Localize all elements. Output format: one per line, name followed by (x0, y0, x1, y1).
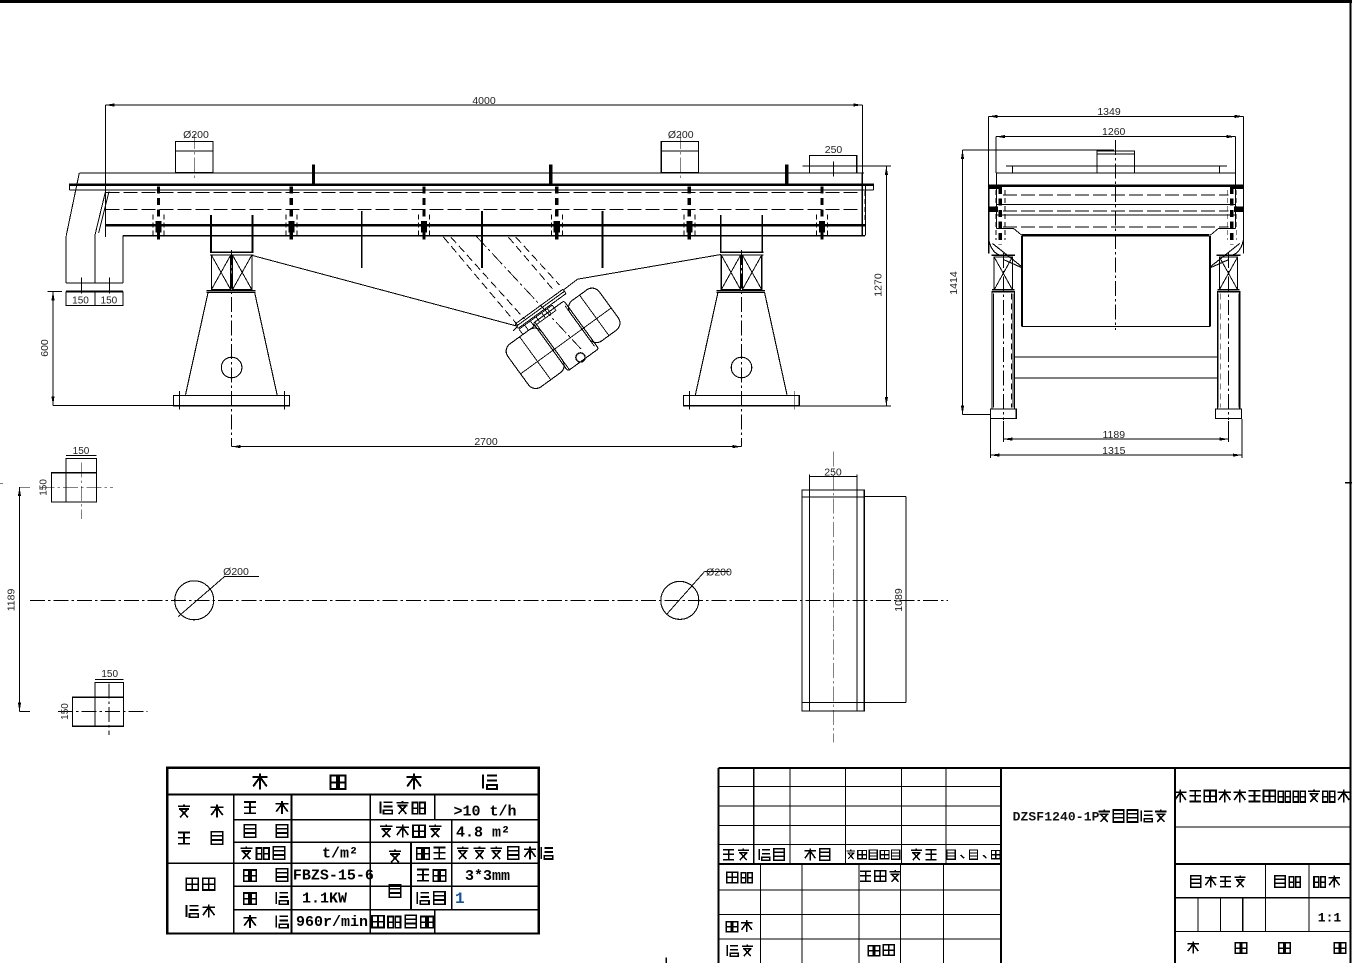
svg-text:3*3mm: 3*3mm (465, 868, 510, 885)
svg-text:150: 150 (60, 703, 71, 720)
svg-text:150: 150 (73, 446, 90, 457)
svg-text:Ø200: Ø200 (706, 567, 732, 579)
svg-text:960r/min: 960r/min (296, 914, 368, 931)
svg-text:1089: 1089 (893, 588, 905, 612)
svg-text:DZSF1240-1P: DZSF1240-1P (1013, 810, 1100, 825)
svg-text:4000: 4000 (472, 95, 496, 107)
svg-text:150: 150 (101, 669, 118, 680)
svg-text:1414: 1414 (948, 271, 960, 295)
svg-text:4.8 m²: 4.8 m² (456, 825, 510, 842)
svg-text:Ø200: Ø200 (223, 566, 249, 578)
svg-text:1189: 1189 (6, 589, 18, 612)
svg-text:1260: 1260 (1102, 126, 1126, 138)
svg-text:>10 t/h: >10 t/h (453, 804, 516, 821)
svg-text:FBZS-15-6: FBZS-15-6 (293, 868, 374, 885)
svg-text:1.1KW: 1.1KW (302, 891, 347, 908)
svg-text:150: 150 (39, 479, 50, 496)
svg-text:1270: 1270 (873, 273, 885, 297)
svg-text:150: 150 (101, 295, 118, 306)
svg-text:150: 150 (72, 295, 89, 306)
svg-text:600: 600 (39, 339, 51, 357)
svg-text:1349: 1349 (1097, 106, 1121, 118)
svg-text:1189: 1189 (1103, 429, 1126, 441)
svg-text:250: 250 (824, 467, 842, 479)
svg-text:1:1: 1:1 (1318, 911, 1342, 926)
svg-text:1: 1 (455, 890, 465, 908)
svg-text:t/m²: t/m² (322, 846, 358, 863)
svg-text:Ø200: Ø200 (183, 129, 209, 141)
svg-text:250: 250 (825, 144, 843, 156)
svg-text:2700: 2700 (474, 436, 498, 448)
svg-text:1315: 1315 (1102, 445, 1126, 457)
